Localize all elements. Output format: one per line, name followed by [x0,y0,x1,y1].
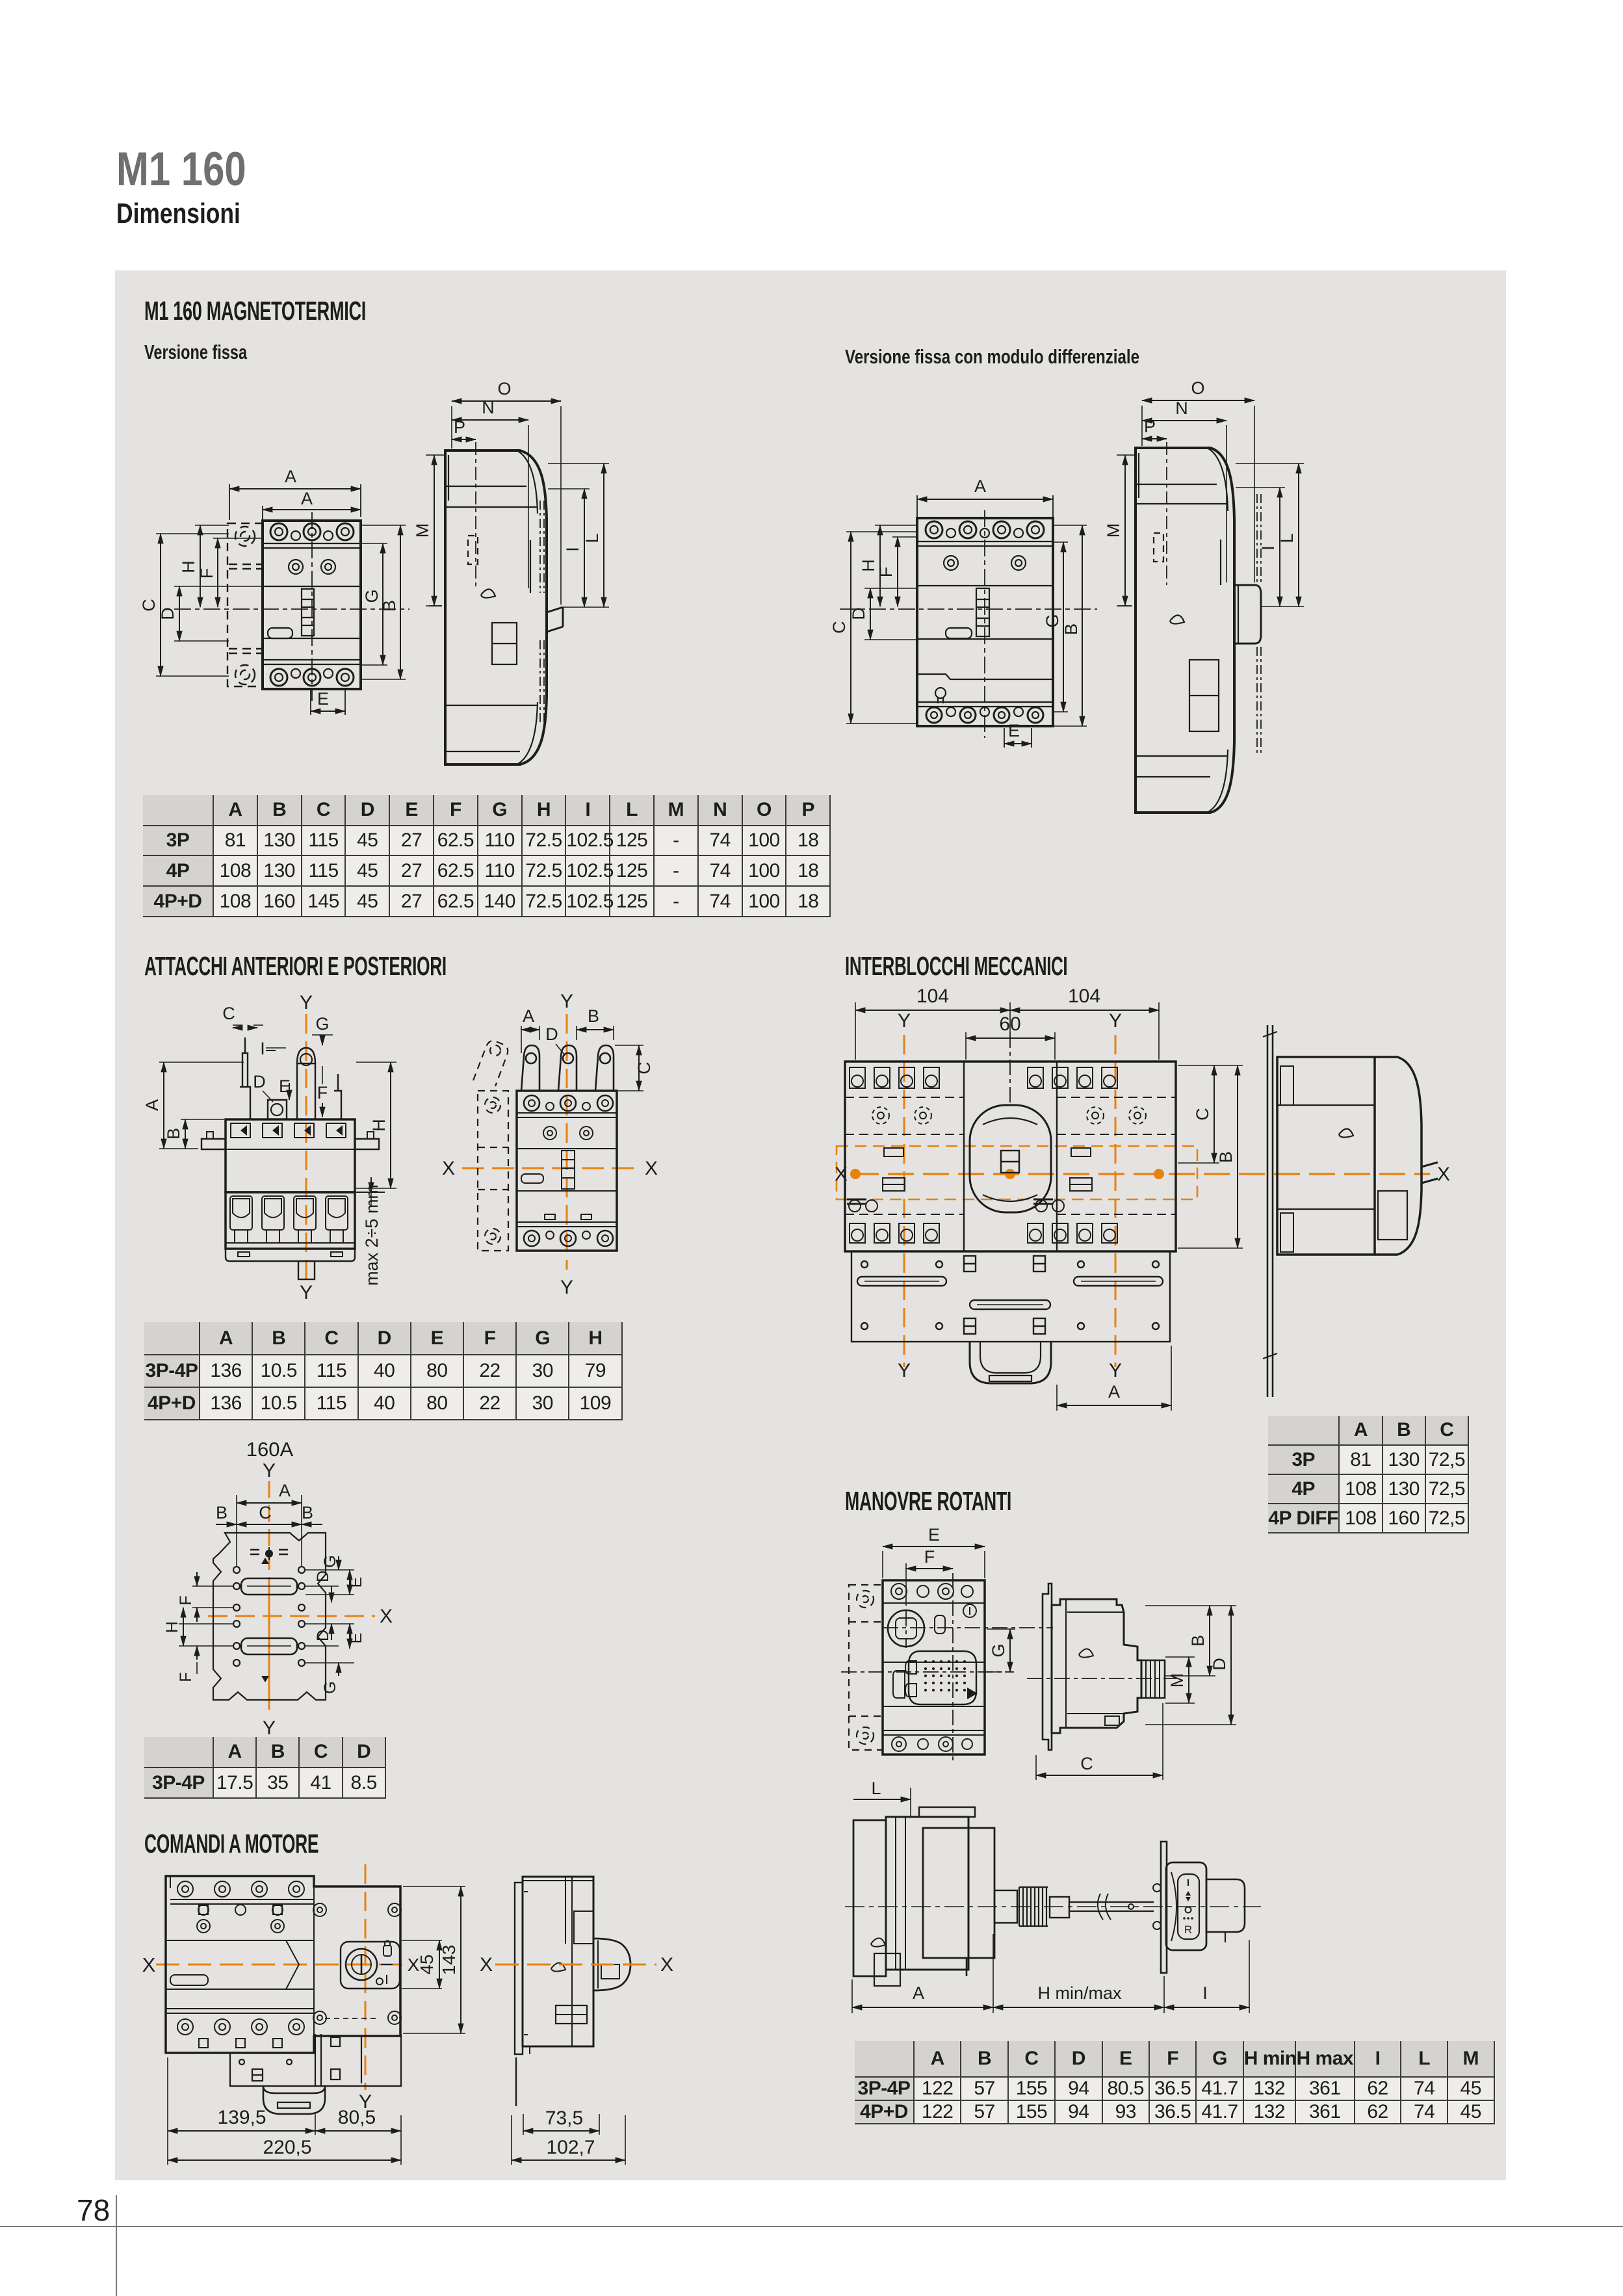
svg-text:G: G [1043,614,1062,627]
svg-text:N: N [1175,398,1188,418]
svg-text:E: E [347,1633,365,1644]
svg-text:A: A [523,1006,534,1026]
svg-text:Y: Y [560,991,573,1012]
svg-text:73,5: 73,5 [545,2107,583,2129]
svg-text:45: 45 [417,1954,437,1974]
svg-text:D: D [849,607,868,620]
svg-text:Y: Y [898,1360,911,1381]
svg-text:C: C [259,1503,272,1522]
svg-text:Y: Y [263,1717,276,1739]
svg-text:F: F [924,1547,935,1567]
svg-text:E: E [317,689,329,709]
svg-text:P: P [454,417,465,437]
svg-text:F: F [197,568,216,579]
svg-text:104: 104 [1068,985,1100,1007]
svg-text:Y: Y [1109,1010,1122,1032]
svg-text:F: F [177,1672,195,1682]
svg-text:C: C [634,1062,654,1075]
svg-text:O: O [497,379,511,398]
svg-text:B: B [588,1006,599,1026]
svg-text:B: B [1061,623,1081,635]
svg-text:Y: Y [898,1010,911,1032]
svg-text:L: L [582,533,602,543]
svg-text:X: X [442,1158,455,1179]
svg-text:Y: Y [300,1282,313,1303]
svg-text:N: N [482,398,495,417]
svg-text:A: A [301,489,313,508]
svg-text:M: M [1104,523,1123,538]
svg-text:L: L [1277,533,1297,543]
svg-text:B: B [302,1503,313,1522]
svg-text:Y: Y [263,1460,276,1481]
svg-text:H: H [369,1119,389,1132]
svg-text:I: I [1258,545,1278,551]
svg-text:G: G [989,1643,1008,1657]
svg-text:D: D [253,1072,266,1091]
svg-text:D: D [545,1024,558,1044]
svg-text:Y: Y [560,1277,573,1298]
svg-text:160A: 160A [246,1438,294,1461]
svg-text:D: D [314,1630,332,1641]
svg-text:C: C [1193,1108,1212,1121]
svg-text:X: X [142,1953,156,1976]
svg-text:A: A [974,476,986,496]
svg-text:B: B [1216,1151,1236,1163]
svg-text:B: B [380,600,399,612]
svg-text:143: 143 [439,1945,459,1976]
svg-text:H min/max: H min/max [1037,1983,1122,2003]
svg-text:R: R [1184,1924,1192,1936]
svg-text:A: A [142,1099,162,1111]
svg-text:D: D [314,1571,332,1582]
svg-text:E: E [347,1577,365,1588]
svg-text:X: X [380,1606,393,1627]
svg-text:A: A [913,1983,924,2003]
svg-text:F: F [177,1595,195,1605]
svg-text:X: X [645,1158,658,1179]
svg-text:B: B [164,1128,183,1140]
svg-text:F: F [876,567,896,578]
svg-text:I: I [260,1039,265,1058]
svg-text:E: E [1008,721,1020,740]
svg-text:104: 104 [916,985,949,1007]
svg-text:A: A [279,1481,291,1500]
svg-text:Y: Y [1109,1360,1122,1381]
svg-text:P: P [1144,417,1156,436]
svg-text:139,5: 139,5 [217,2107,266,2128]
svg-text:A: A [285,467,296,486]
svg-text:C: C [139,599,159,612]
svg-text:G: G [321,1555,339,1567]
svg-text:G: G [362,589,382,603]
svg-text:X: X [1437,1164,1450,1185]
svg-text:60: 60 [999,1013,1020,1035]
svg-text:I: I [563,547,582,552]
svg-text:H: H [179,560,198,573]
svg-text:I: I [1202,1983,1208,2003]
svg-text:B: B [216,1503,227,1522]
svg-text:max 2÷5 mm: max 2÷5 mm [362,1184,382,1286]
svg-text:H: H [163,1621,181,1633]
svg-text:102,7: 102,7 [546,2137,595,2158]
svg-text:G: G [321,1681,339,1693]
svg-text:X: X [480,1954,493,1976]
svg-text:H: H [859,559,878,572]
svg-text:80,5: 80,5 [338,2107,376,2128]
svg-text:A: A [1108,1382,1120,1402]
svg-text:O: O [1191,378,1204,398]
svg-text:E: E [928,1525,940,1545]
svg-text:M: M [413,523,432,538]
svg-text:Y: Y [300,992,313,1013]
svg-text:M: M [1167,1673,1187,1688]
svg-text:L: L [871,1779,881,1798]
svg-text:G: G [315,1014,329,1034]
svg-text:C: C [1080,1754,1093,1773]
svg-text:X: X [660,1954,673,1976]
svg-text:B: B [1188,1635,1208,1647]
svg-text:C: C [829,621,849,634]
svg-text:C: C [222,1004,235,1023]
svg-text:D: D [158,607,177,620]
svg-text:220,5: 220,5 [263,2137,311,2158]
svg-text:D: D [1210,1658,1229,1671]
svg-text:F: F [317,1083,328,1102]
